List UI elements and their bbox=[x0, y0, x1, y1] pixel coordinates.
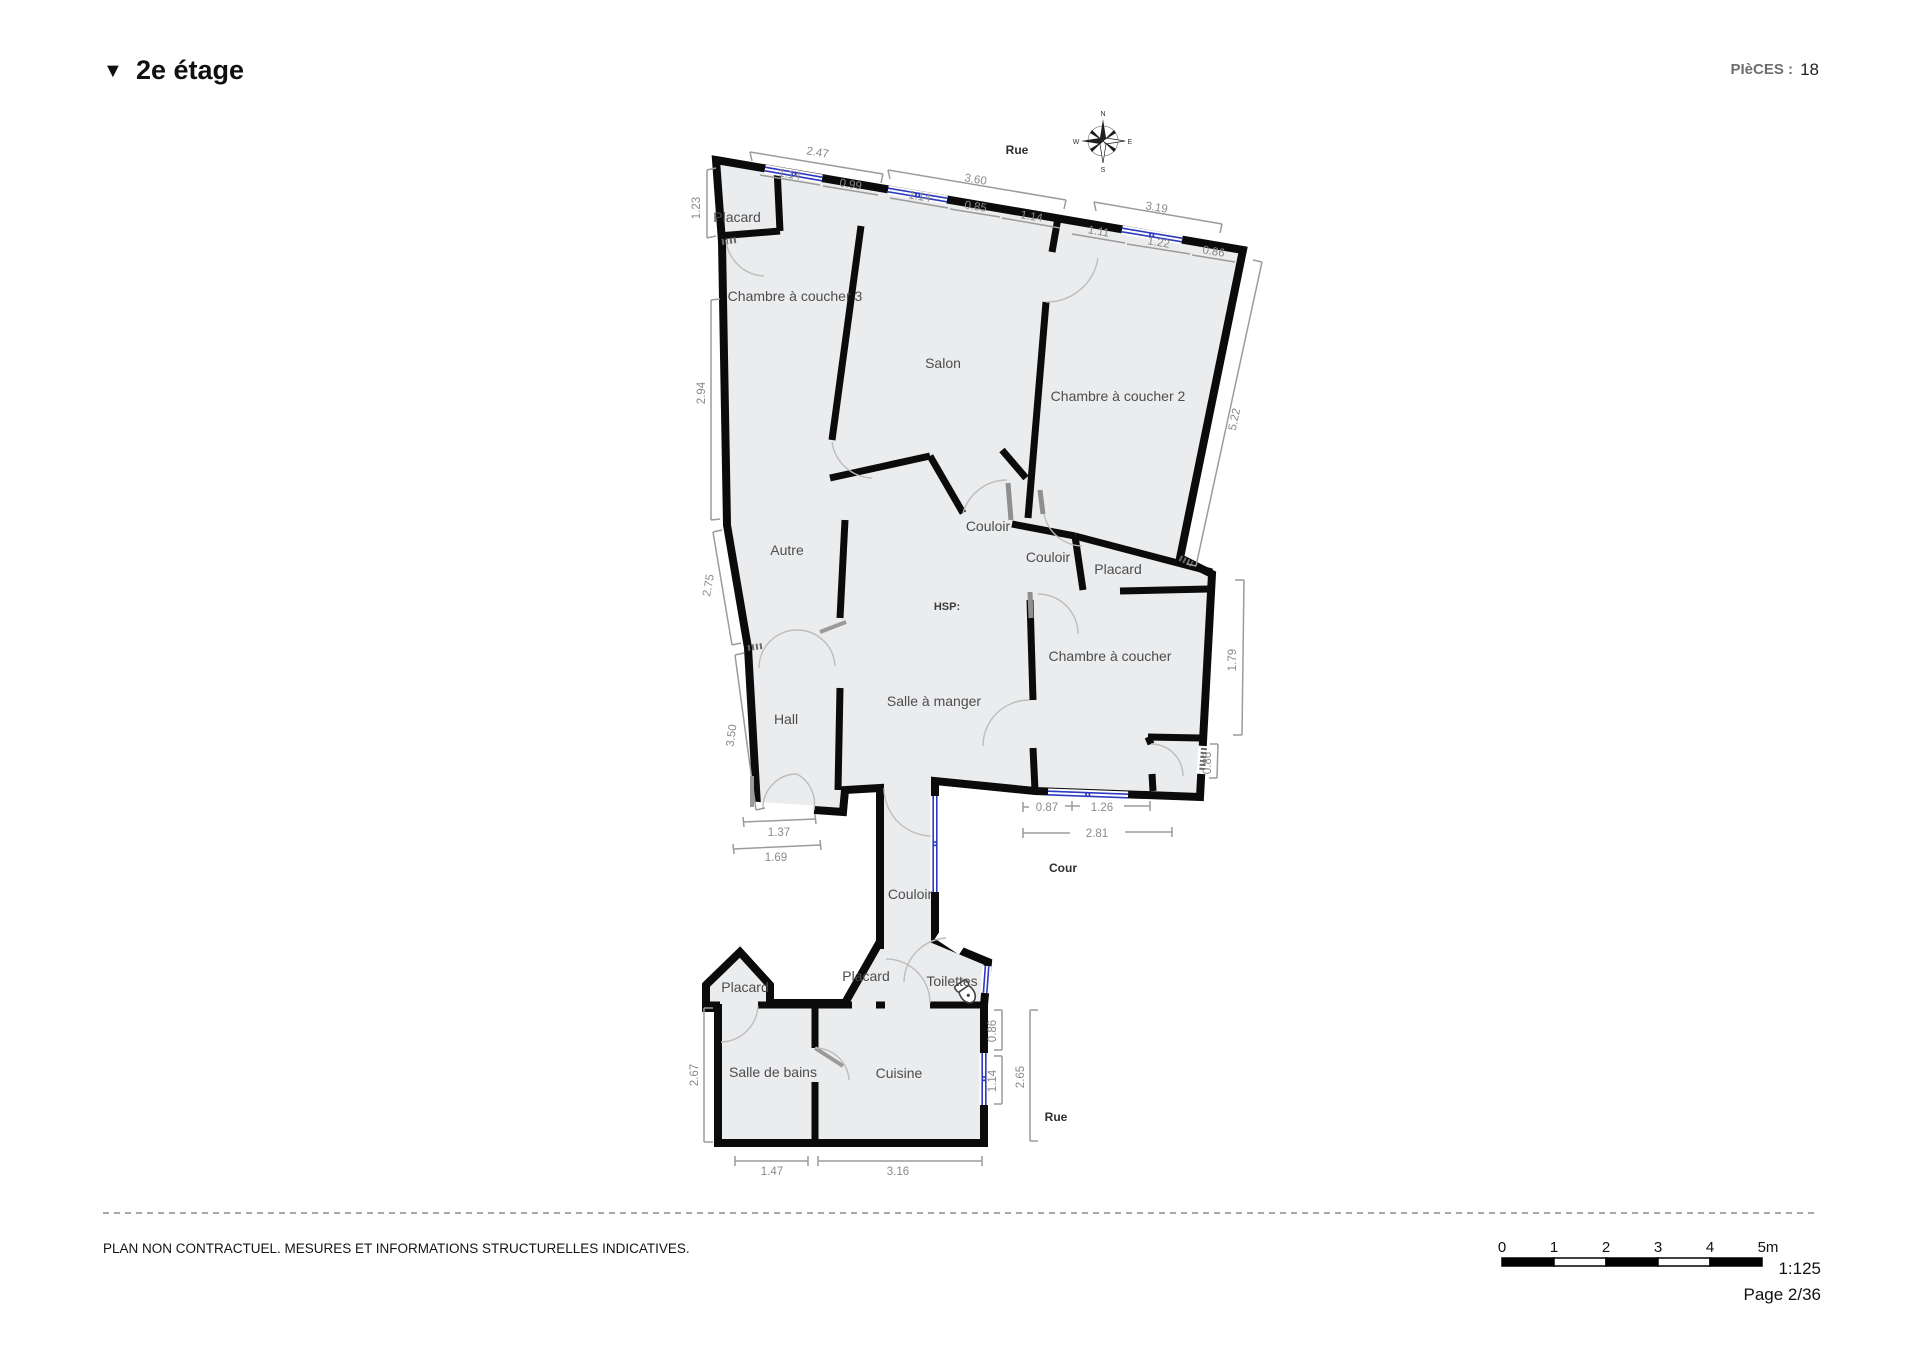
dim-label: 2.47 bbox=[805, 145, 829, 161]
dim-label: 1.23 bbox=[691, 197, 703, 219]
floor-plan-page: ▼ 2e étage PIèCES : 18 bbox=[0, 0, 1920, 1356]
street-label-bottom: Rue bbox=[1045, 1110, 1068, 1124]
scale-tick: 0 bbox=[1498, 1239, 1506, 1256]
room-label-salle-a-manger: Salle à manger bbox=[887, 693, 982, 709]
room-label-placard-2: Placard bbox=[1094, 561, 1141, 577]
scale-tick: 1 bbox=[1550, 1239, 1558, 1256]
scale-bar: 0 1 2 3 4 5m bbox=[1498, 1239, 1779, 1266]
dim-label: 1.37 bbox=[768, 827, 790, 839]
compass-icon: N S E W bbox=[1073, 111, 1133, 174]
room-label-couloir-3: Couloir bbox=[888, 886, 933, 902]
dim-label: 2.94 bbox=[696, 381, 708, 404]
street-label-top: Rue bbox=[1006, 143, 1029, 157]
page-title: 2e étage bbox=[136, 55, 244, 85]
room-label-placard-4: Placard bbox=[721, 979, 768, 995]
dim-label: 2.65 bbox=[1015, 1066, 1027, 1088]
section-collapse-icon[interactable]: ▼ bbox=[103, 60, 123, 82]
compass-west: W bbox=[1073, 139, 1080, 146]
compass-south: S bbox=[1101, 167, 1106, 174]
compass-east: E bbox=[1128, 139, 1133, 146]
courtyard-label: Cour bbox=[1049, 861, 1077, 875]
dim-label: 3.19 bbox=[1144, 200, 1168, 216]
window-icon bbox=[983, 966, 988, 993]
dim-label: 0.87 bbox=[1036, 802, 1058, 814]
dim-label: 1.14 bbox=[987, 1069, 999, 1092]
dim-label: 1.69 bbox=[765, 852, 787, 864]
room-label-salle-de-bains: Salle de bains bbox=[729, 1064, 817, 1080]
window-icon bbox=[1048, 791, 1128, 798]
room-label-salon: Salon bbox=[925, 355, 961, 371]
dim-label: 2.75 bbox=[701, 573, 717, 597]
room-label-couloir-1: Couloir bbox=[966, 518, 1011, 534]
room-label-chambre-1: Chambre à coucher bbox=[1049, 648, 1172, 664]
dim-label: 1.26 bbox=[1091, 802, 1113, 814]
disclaimer-text: PLAN NON CONTRACTUEL. MESURES ET INFORMA… bbox=[103, 1241, 690, 1256]
dim-label: 3.50 bbox=[725, 724, 740, 748]
window-icon bbox=[933, 796, 937, 892]
scale-ratio: 1:125 bbox=[1778, 1259, 1821, 1278]
scale-tick: 3 bbox=[1654, 1239, 1662, 1256]
pieces-label: PIèCES : bbox=[1730, 61, 1793, 78]
dim-label: 1.79 bbox=[1227, 649, 1239, 671]
room-label-hall: Hall bbox=[774, 711, 798, 727]
room-label-chambre-3: Chambre à coucher 3 bbox=[728, 288, 863, 304]
dim-label: 3.60 bbox=[963, 172, 987, 188]
scale-tick: 5m bbox=[1758, 1239, 1779, 1256]
dim-label: 2.67 bbox=[689, 1064, 701, 1086]
dim-label: 2.81 bbox=[1086, 828, 1108, 840]
room-label-autre: Autre bbox=[770, 542, 804, 558]
room-label-placard-3: Placard bbox=[842, 968, 889, 984]
dim-label: 3.16 bbox=[887, 1166, 909, 1178]
dim-label: 0.86 bbox=[1202, 752, 1214, 774]
room-label-cuisine: Cuisine bbox=[876, 1065, 923, 1081]
room-label-toilettes: Toilettes bbox=[926, 973, 977, 989]
floor-plan: N S E W Placard Chambre à coucher 3 Salo… bbox=[689, 111, 1262, 1178]
room-label-chambre-2: Chambre à coucher 2 bbox=[1051, 388, 1186, 404]
room-label-couloir-2: Couloir bbox=[1026, 549, 1071, 565]
dim-label: 0.86 bbox=[987, 1020, 999, 1042]
page-number: Page 2/36 bbox=[1743, 1285, 1821, 1304]
room-label-hsp: HSP: bbox=[934, 601, 960, 613]
room-label-placard-1: Placard bbox=[713, 209, 760, 225]
pieces-count: 18 bbox=[1800, 60, 1819, 79]
compass-north: N bbox=[1100, 111, 1105, 118]
scale-tick: 4 bbox=[1706, 1239, 1714, 1256]
dim-label: 1.47 bbox=[761, 1166, 783, 1178]
window-icon bbox=[982, 1053, 986, 1105]
scale-tick: 2 bbox=[1602, 1239, 1610, 1256]
